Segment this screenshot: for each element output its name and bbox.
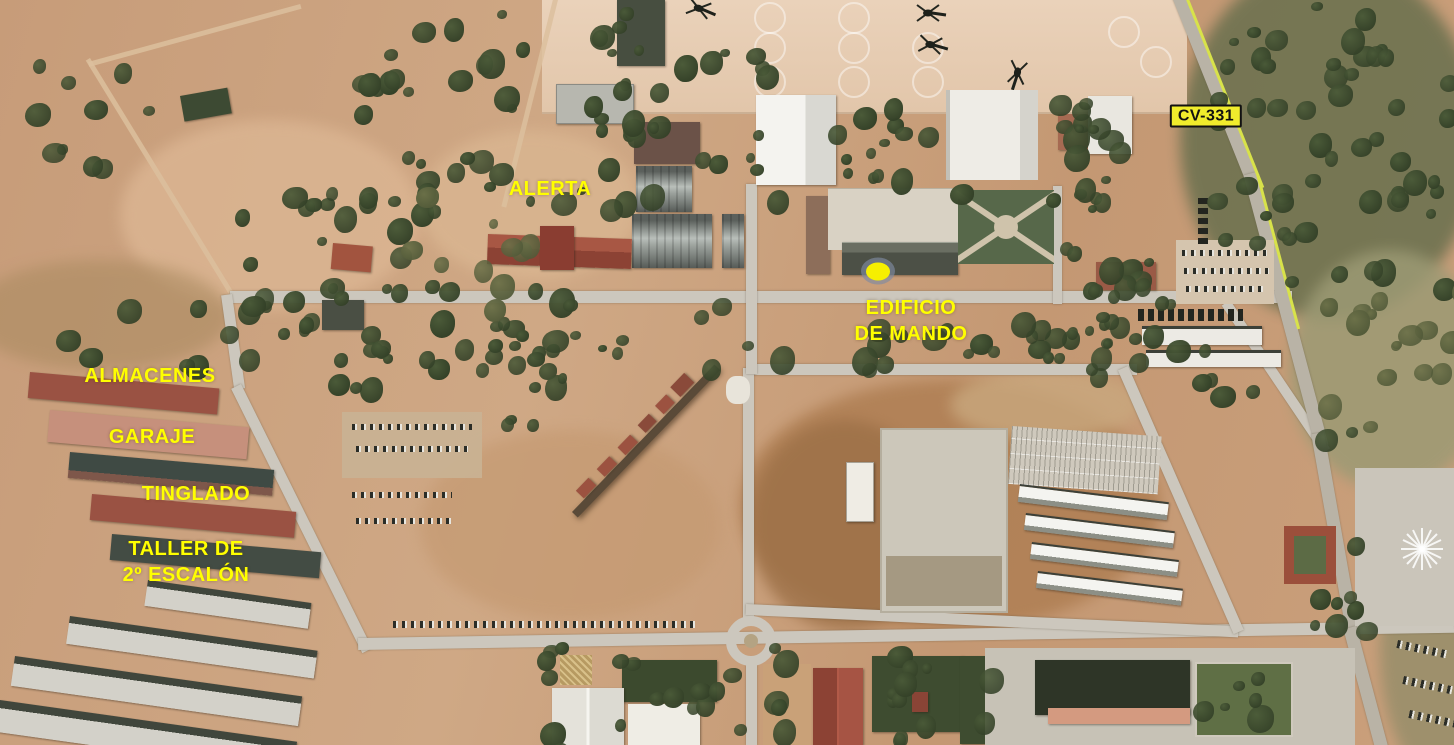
location-marker [861,258,895,285]
map-label-taller-2-escalon: TALLER DE2º ESCALÓN [123,536,250,588]
road-sign-cv331: CV-331 [1170,105,1242,128]
map-label-almacenes: ALMACENES [84,363,215,389]
location-marker-dot [866,262,890,280]
map-label-tinglado: TINGLADO [142,481,250,507]
map-label-garaje: GARAJE [109,424,195,450]
map-label-edificio-de-mando: EDIFICIODE MANDO [855,295,968,347]
aerial-map: ALERTAEDIFICIODE MANDOALMACENESGARAJETIN… [0,0,1454,745]
map-label-alerta: ALERTA [509,176,592,202]
